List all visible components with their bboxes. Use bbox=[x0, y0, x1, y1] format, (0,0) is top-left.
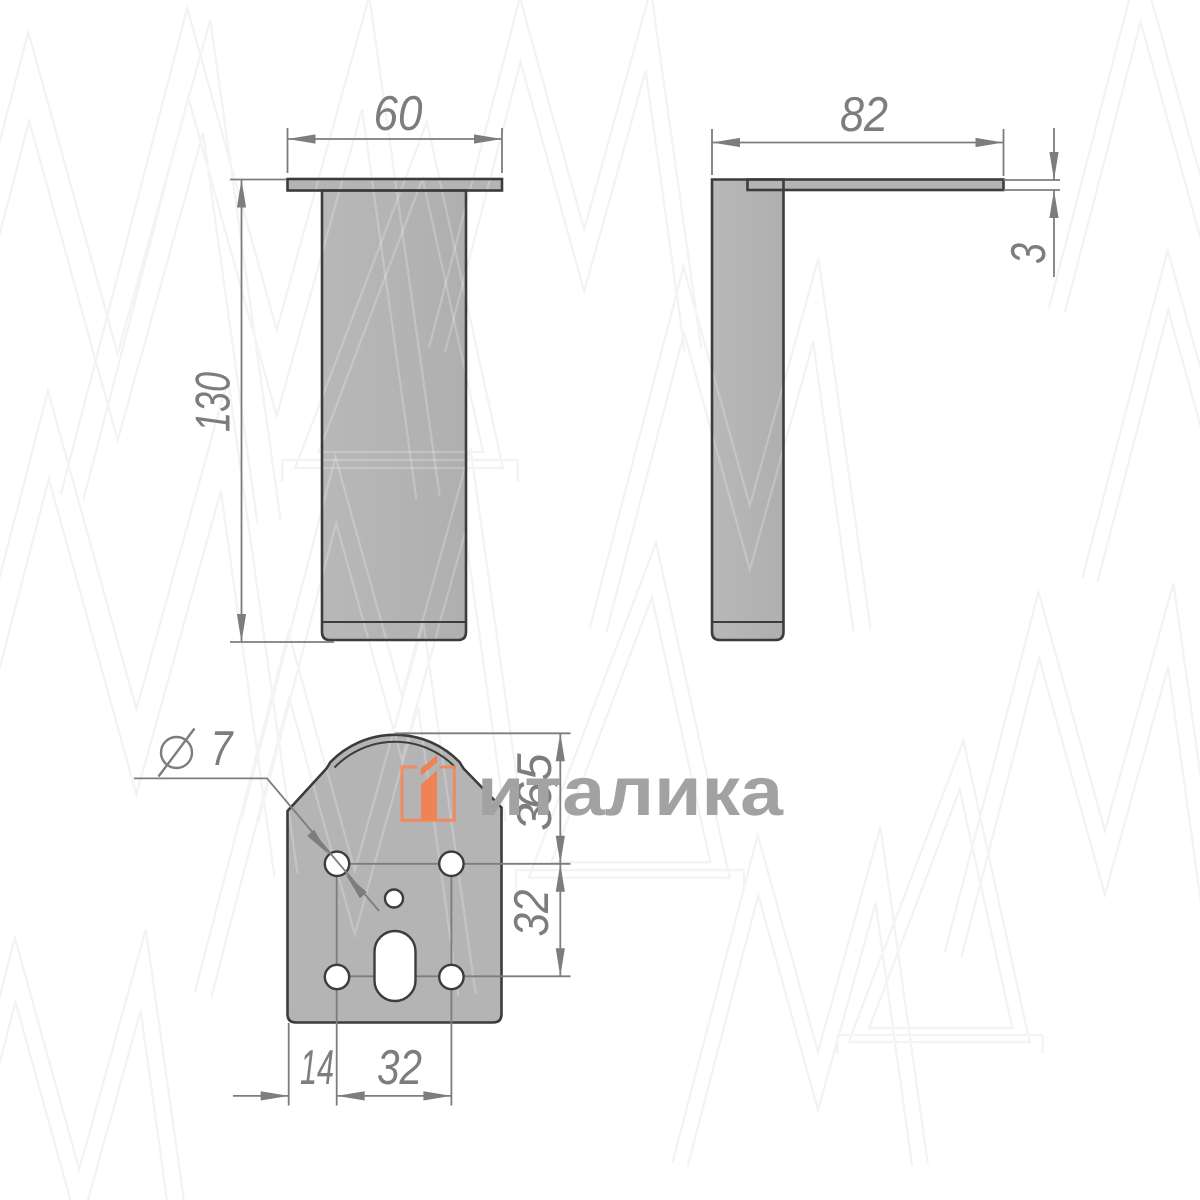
svg-text:32: 32 bbox=[505, 890, 559, 937]
svg-text:14: 14 bbox=[300, 1041, 334, 1095]
svg-text:60: 60 bbox=[374, 87, 423, 141]
svg-text:3: 3 bbox=[1002, 243, 1056, 264]
svg-text:7: 7 bbox=[211, 722, 234, 776]
svg-text:32: 32 bbox=[377, 1041, 422, 1095]
svg-text:82: 82 bbox=[840, 88, 888, 142]
svg-text:италика: италика bbox=[477, 753, 784, 830]
svg-text:130: 130 bbox=[187, 372, 241, 432]
